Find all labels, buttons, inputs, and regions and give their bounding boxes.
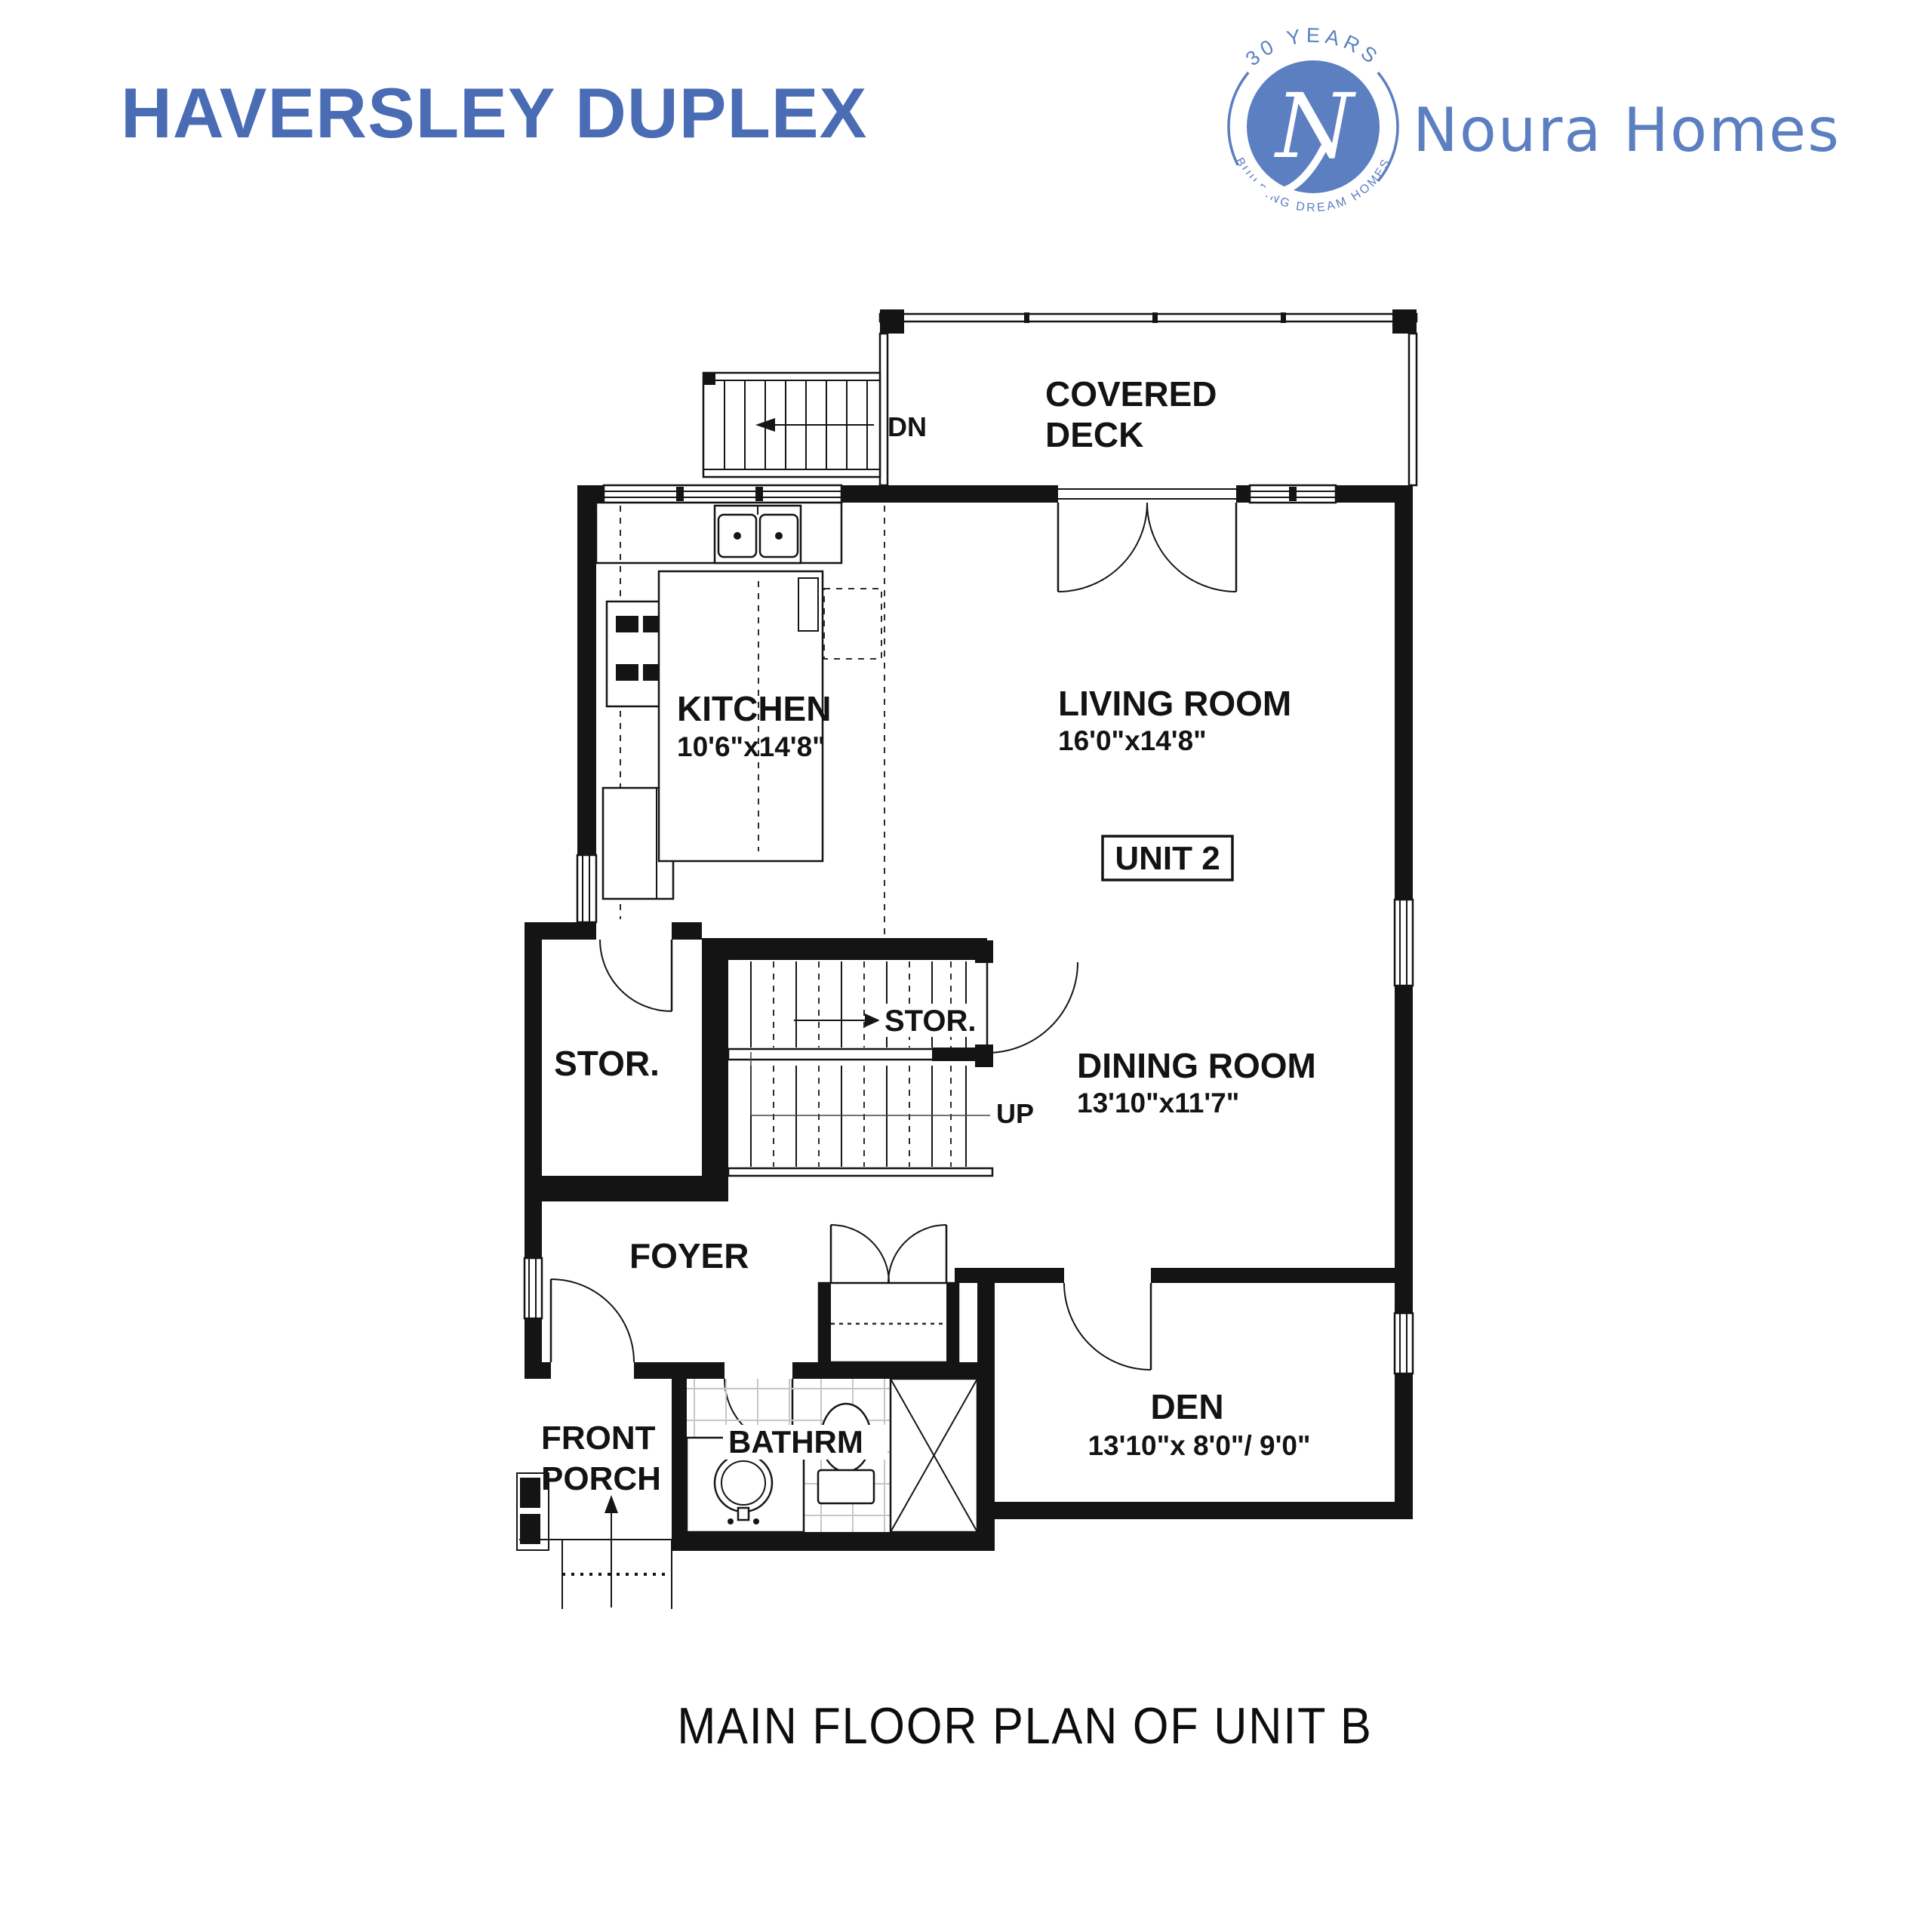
noura-homes-logo: 30 YEARS BUILDING DREAM HOMES N Noura Ho…	[1207, 21, 1872, 255]
deck-french-doors	[1058, 489, 1236, 592]
porch-side-window	[525, 1258, 542, 1318]
foyer-closet	[819, 1225, 958, 1362]
label-dn: DN	[888, 411, 927, 442]
kitchen-side-window	[577, 855, 596, 922]
deck-post	[1392, 309, 1417, 334]
den-door	[1064, 1283, 1151, 1370]
main-stairs	[702, 938, 1078, 1176]
kitchen-sink	[715, 506, 801, 563]
label-up: UP	[996, 1098, 1034, 1129]
label-front-porch-1: FRONT	[541, 1420, 656, 1457]
plan-caption: MAIN FLOOR PLAN OF UNIT B	[155, 1697, 1894, 1755]
page-title: HAVERSLEY DUPLEX	[121, 72, 867, 154]
logo-monogram: N	[1273, 74, 1356, 178]
label-dining-room: DINING ROOM	[1077, 1046, 1316, 1085]
label-foyer: FOYER	[629, 1236, 749, 1275]
front-door	[551, 1279, 634, 1362]
logo-brand-name: Noura Homes	[1413, 95, 1841, 165]
deck-stairs	[703, 373, 880, 477]
label-storage: STOR.	[554, 1044, 660, 1083]
living-room-side-window	[1395, 900, 1413, 986]
label-stair-storage: STOR.	[884, 1004, 977, 1038]
label-dining-room-dims: 13'10"x11'7"	[1077, 1088, 1239, 1118]
upper-cabinets	[824, 589, 881, 659]
label-den: DEN	[1150, 1387, 1223, 1426]
unit-badge: UNIT 2	[1103, 836, 1232, 880]
svg-text:UNIT 2: UNIT 2	[1115, 840, 1220, 877]
closet-double-doors	[831, 1225, 946, 1283]
deck-post	[880, 309, 904, 334]
label-bathroom: BATHRM	[728, 1424, 863, 1460]
label-kitchen: KITCHEN	[677, 689, 831, 728]
den-window	[1395, 1313, 1413, 1374]
kitchen-window	[604, 485, 841, 503]
stair-storage-door	[987, 962, 1078, 1053]
storage-door	[600, 922, 702, 1011]
label-front-porch-2: PORCH	[541, 1460, 661, 1497]
floor-plan: DN	[498, 287, 1434, 1615]
label-living-room-dims: 16'0"x14'8"	[1058, 725, 1207, 756]
shower	[891, 1379, 977, 1532]
label-living-room: LIVING ROOM	[1058, 684, 1291, 723]
living-room-top-window	[1250, 485, 1336, 503]
label-kitchen-dims: 10'6"x14'8"	[677, 731, 826, 762]
label-den-dims: 13'10"x 8'0"/ 9'0"	[1088, 1430, 1310, 1461]
label-covered-deck-2: DECK	[1045, 415, 1143, 454]
label-covered-deck-1: COVERED	[1045, 374, 1217, 414]
porch-pier	[520, 1478, 540, 1508]
